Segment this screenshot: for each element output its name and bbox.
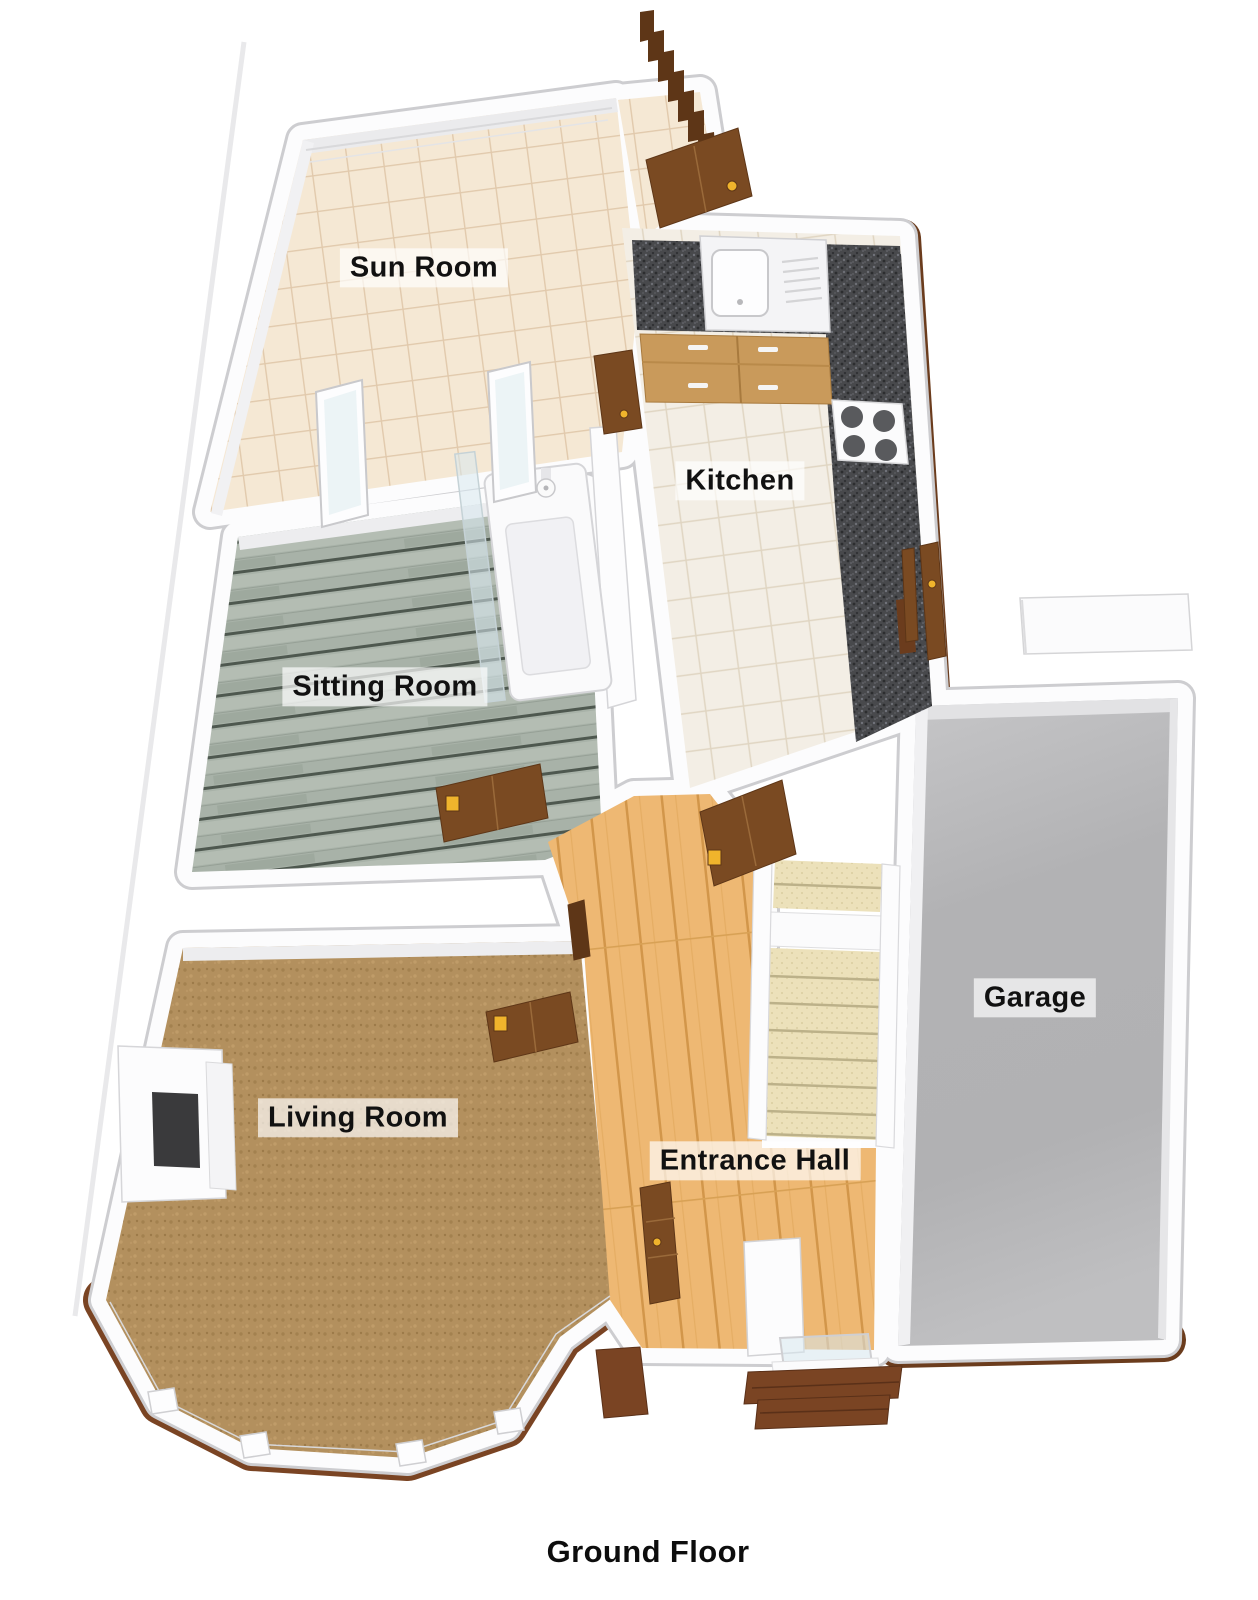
stairs-half-landing — [769, 912, 882, 950]
living-room-label: Living Room — [258, 1098, 458, 1137]
garage-floor — [898, 698, 1178, 1346]
hall-left-door-handle — [653, 1238, 661, 1246]
entrance-hall-label: Entrance Hall — [650, 1141, 861, 1180]
sink-basin — [712, 250, 768, 316]
bay-window-post — [396, 1440, 426, 1466]
garage-side-door-handle — [928, 580, 936, 588]
rear-door-handle — [727, 181, 737, 191]
kitchen-left-door-handle — [620, 410, 628, 418]
french-door-right-glass — [495, 372, 529, 490]
kitchen-base-cabinets — [640, 334, 832, 404]
bay-window-post — [494, 1408, 524, 1434]
bath-tap-dot — [544, 486, 549, 491]
kitchen-label: Kitchen — [675, 461, 804, 500]
kitchen-hall-door-handle — [708, 850, 721, 865]
living-room-door-hinge — [494, 1016, 507, 1031]
bay-window-post — [240, 1432, 270, 1458]
sun-room-floor — [210, 98, 638, 512]
garage-top-wall-block — [1020, 594, 1192, 654]
sink-plughole — [737, 299, 743, 305]
french-door-left-glass — [324, 390, 361, 515]
garage-label: Garage — [974, 978, 1096, 1017]
living-room-fixtures — [118, 1046, 236, 1202]
hob-plate — [832, 400, 908, 464]
sitting-room-label: Sitting Room — [282, 667, 487, 706]
floor-plan-page: Sun Room Kitchen Sitting Room Living Roo… — [0, 0, 1258, 1600]
fireplace-hearth — [206, 1062, 236, 1190]
brick-sill-by-door — [596, 1347, 648, 1418]
sitting-room-door-hinge — [446, 796, 459, 811]
fireplace-firebox — [152, 1092, 200, 1168]
bay-window-post — [148, 1388, 178, 1414]
floor-title: Ground Floor — [547, 1534, 750, 1570]
sun-room-label: Sun Room — [340, 248, 508, 287]
floor-plan-drawing — [0, 0, 1258, 1600]
